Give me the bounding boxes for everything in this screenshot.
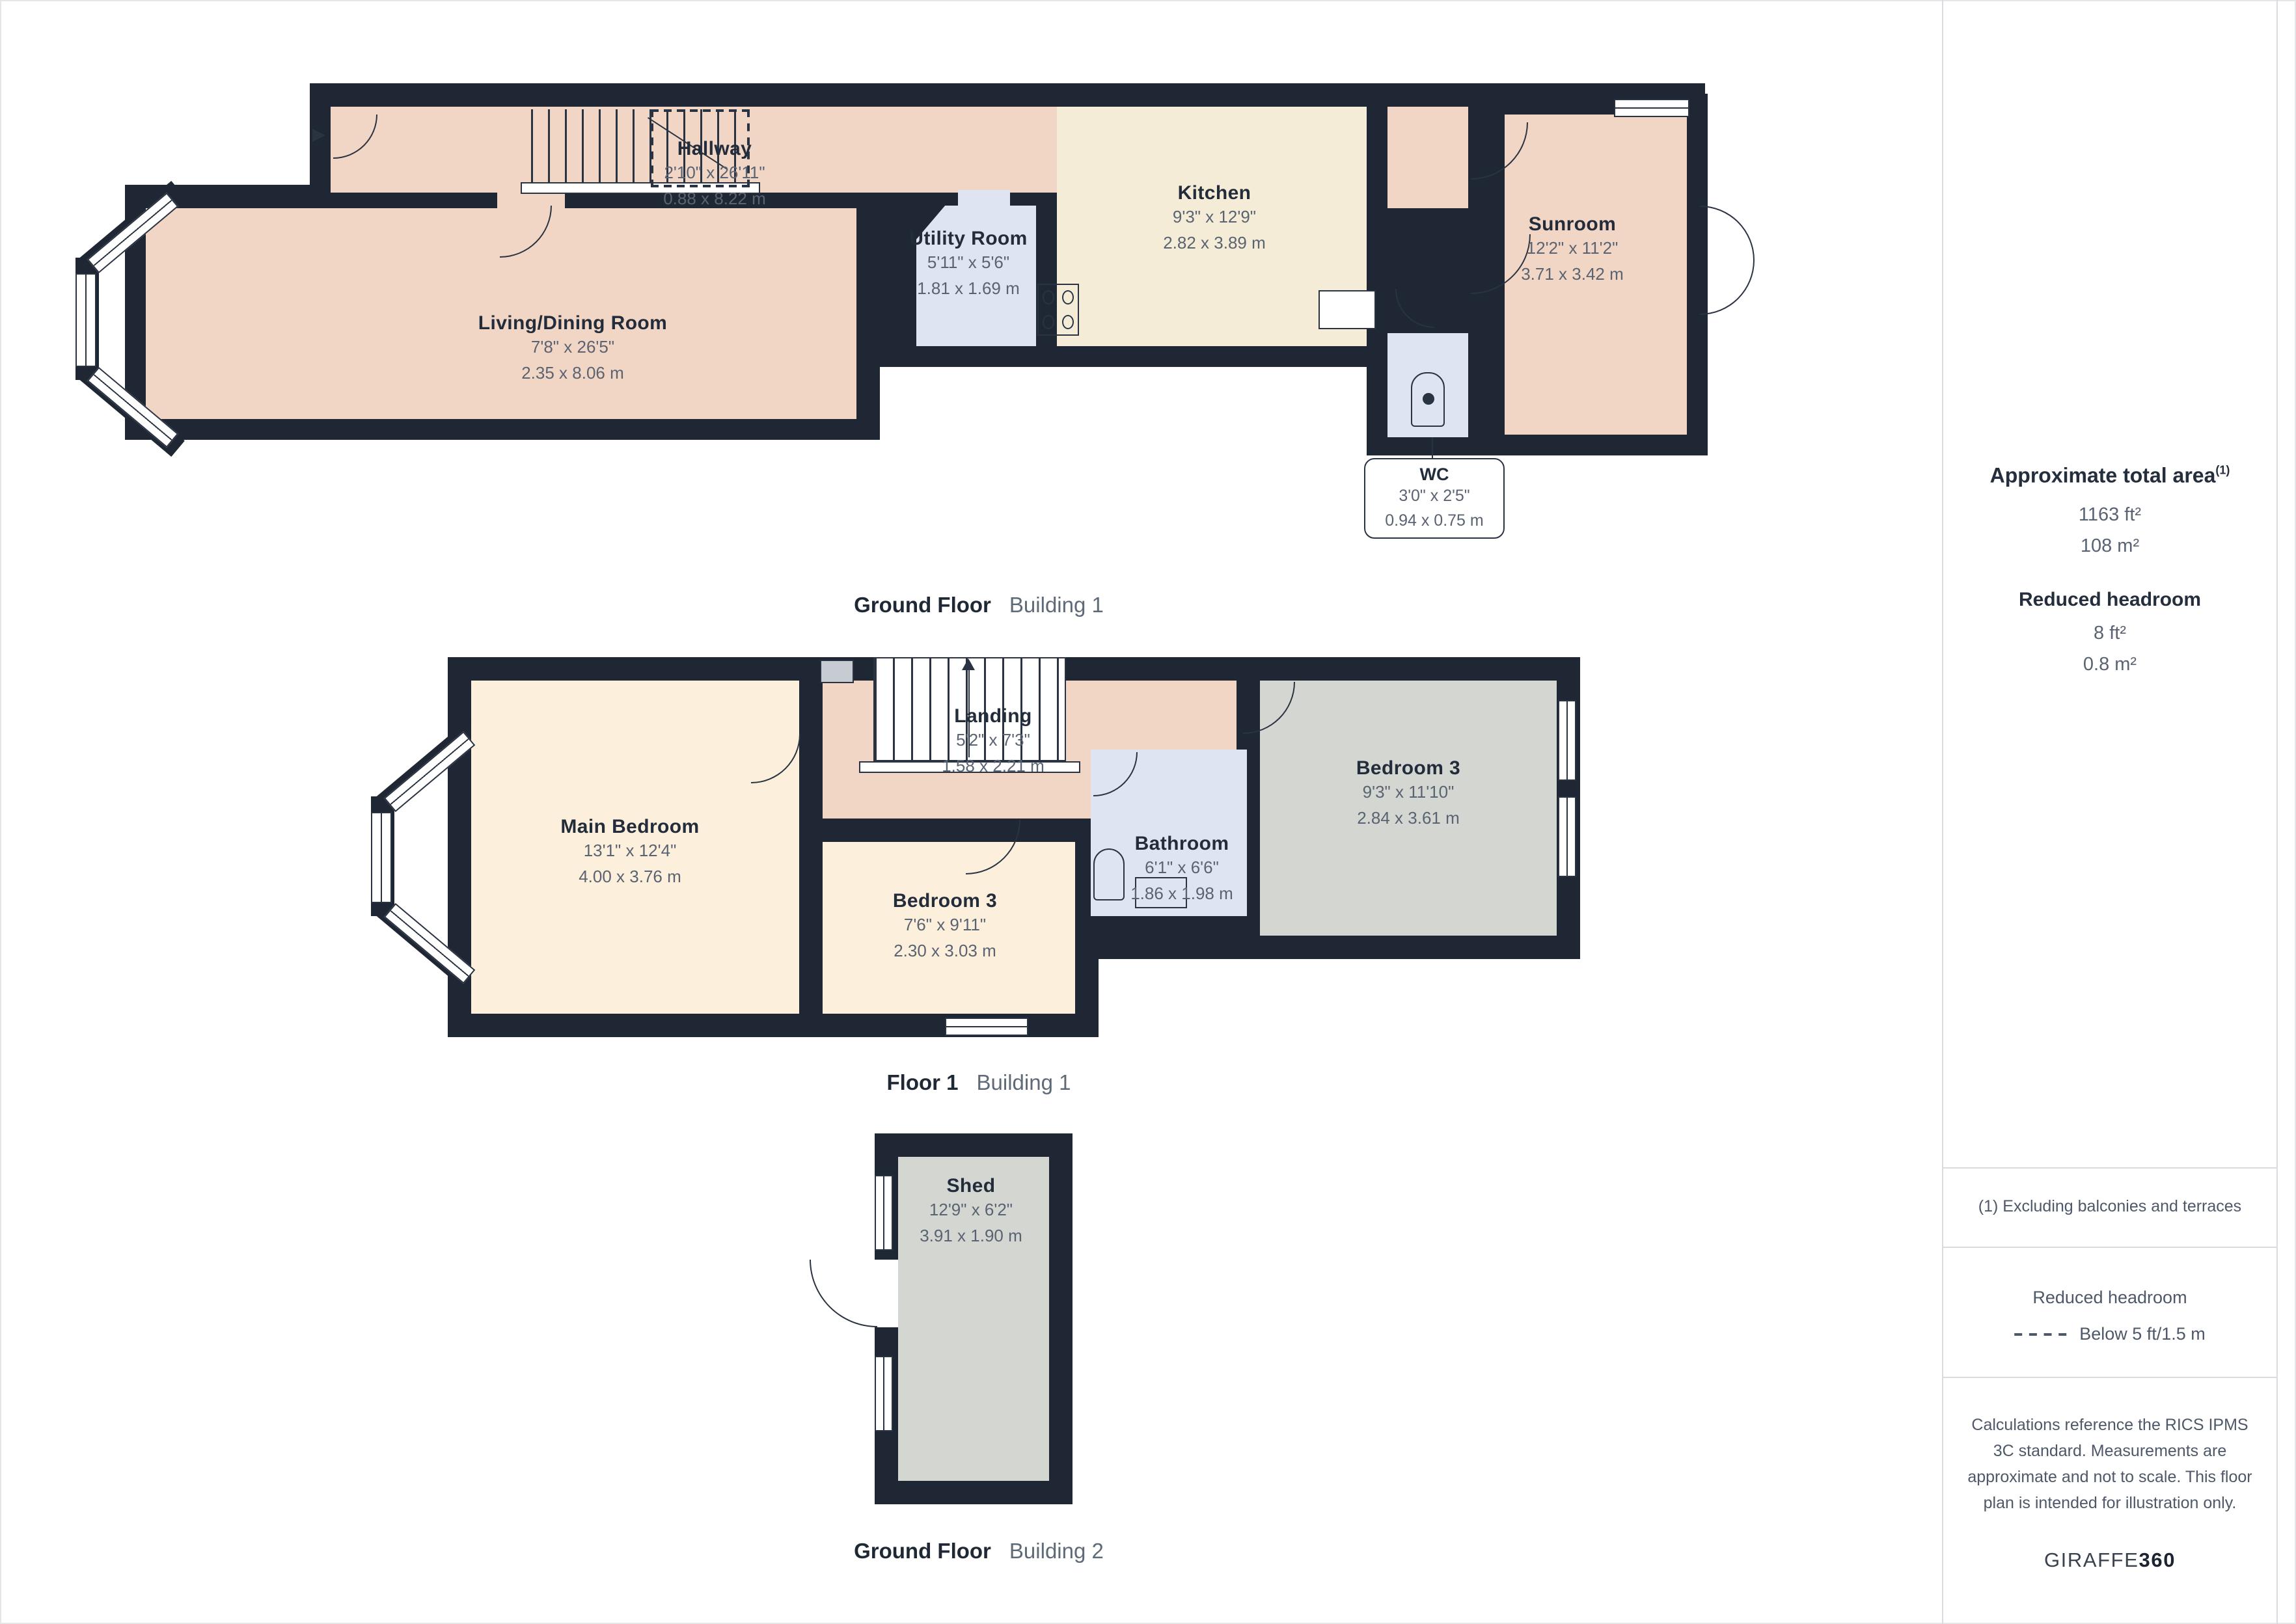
- caption-floor1-b1: Floor 1 Building 1: [887, 1072, 1071, 1096]
- room-label-main-bedroom: Main Bedroom 13'1" x 12'4" 4.00 x 3.76 m: [560, 816, 699, 889]
- room-label-landing: Landing 5'2" x 7'3" 1.58 x 2.21 m: [942, 705, 1045, 778]
- kitchen-hob-icon: [1037, 284, 1079, 336]
- brand-name: GIRAFFE: [2044, 1550, 2139, 1572]
- sidebar-left-border: [1942, 0, 1943, 1624]
- floorplan-page: WC 3'0" x 2'5" 0.94 x 0.75 m Hallway 2'1…: [0, 0, 2296, 1624]
- total-area-m: 108 m²: [2081, 536, 2139, 557]
- floor-label: Floor 1: [887, 1072, 959, 1096]
- room-label-kitchen: Kitchen 9'3" x 12'9" 2.82 x 3.89 m: [1163, 182, 1266, 255]
- entry-arrow-icon: [312, 129, 325, 142]
- shed-window-lower: [875, 1356, 893, 1431]
- kitchen-counter: [1319, 290, 1376, 329]
- f1-gray-box: [820, 660, 854, 683]
- sidebar-right-border: [2276, 0, 2278, 1624]
- sunroom-french-door-lower-arc: [1700, 260, 1755, 315]
- brand-suffix: 360: [2139, 1550, 2176, 1572]
- room-label-living-dining: Living/Dining Room 7'8" x 26'5" 2.35 x 8…: [478, 312, 668, 385]
- f1-bay-window-center: [371, 812, 392, 903]
- utility-door-opening: [958, 190, 1010, 208]
- room-dim-imperial: 3'0" x 2'5": [1365, 485, 1503, 508]
- wc-leader-line: [1432, 437, 1433, 458]
- bedroom3-right-window-lower: [1558, 796, 1576, 877]
- room-label-bathroom: Bathroom 6'1" x 6'6" 1.86 x 1.98 m: [1130, 833, 1233, 906]
- total-area-heading: Approximate total area(1): [1990, 464, 2230, 489]
- room-name: WC: [1365, 465, 1503, 485]
- hob-burner-icon: [1043, 290, 1054, 304]
- floor-label: Ground Floor: [854, 1540, 991, 1565]
- bay-window-center: [75, 273, 96, 367]
- room-label-hallway: Hallway 2'10" x 26'11" 0.88 x 8.22 m: [663, 138, 766, 211]
- bedroom3-mid-bottom-window: [945, 1018, 1028, 1036]
- reduced-headroom-m: 0.8 m²: [2083, 655, 2137, 675]
- sunroom-french-door-upper-arc: [1700, 206, 1755, 260]
- caption-ground-floor-b2: Ground Floor Building 2: [854, 1540, 1104, 1565]
- room-label-bedroom3-right: Bedroom 3 9'3" x 11'10" 2.84 x 3.61 m: [1356, 757, 1460, 830]
- reduced-headroom-dash-icon: [2014, 1333, 2066, 1335]
- hob-burner-icon: [1043, 315, 1054, 329]
- kitchen-passage-floor: [1387, 107, 1468, 208]
- bedroom3-right-window-upper: [1558, 700, 1576, 781]
- sunroom-top-window: [1614, 99, 1689, 117]
- brand-logo: GIRAFFE360: [2044, 1550, 2176, 1573]
- footnote-text: (1) Excluding balconies and terraces: [1978, 1197, 2241, 1215]
- shed-door-opening: [875, 1260, 898, 1327]
- bathroom-toilet-icon: [1093, 848, 1125, 900]
- floor-label: Ground Floor: [854, 594, 991, 619]
- room-label-sunroom: Sunroom 12'2" x 11'2" 3.71 x 3.42 m: [1521, 213, 1624, 286]
- disclaimer-text: Calculations reference the RICS IPMS 3C …: [1959, 1412, 2261, 1516]
- reduced-headroom-heading: Reduced headroom: [2019, 589, 2201, 611]
- reduced-headroom-ft: 8 ft²: [2094, 623, 2126, 644]
- building-label: Building 2: [1009, 1540, 1104, 1565]
- wc-toilet-dot: [1423, 393, 1434, 405]
- shed-door-arc: [810, 1260, 877, 1327]
- f1-stairs-arrow-icon: [962, 658, 975, 670]
- room-label-bedroom3-mid: Bedroom 3 7'6" x 9'11" 2.30 x 3.03 m: [893, 890, 997, 963]
- building-label: Building 1: [1009, 594, 1104, 619]
- total-area-ft: 1163 ft²: [2079, 505, 2141, 526]
- room-label-utility: Utility Room 5'11" x 5'6" 1.81 x 1.69 m: [909, 228, 1027, 301]
- total-area-heading-text: Approximate total area: [1990, 465, 2216, 487]
- building-label: Building 1: [977, 1072, 1071, 1096]
- legend-heading: Reduced headroom: [2032, 1288, 2187, 1307]
- sidebar-divider-2: [1943, 1247, 2276, 1248]
- legend-item: Below 5 ft/1.5 m: [2079, 1324, 2206, 1344]
- footnote-marker: (1): [2215, 464, 2230, 477]
- sidebar-divider-3: [1943, 1377, 2276, 1378]
- room-dim-metric: 0.94 x 0.75 m: [1365, 508, 1503, 532]
- shed-window-upper: [875, 1175, 893, 1251]
- room-label-shed: Shed 12'9" x 6'2" 3.91 x 1.90 m: [920, 1175, 1022, 1248]
- legend-row: Below 5 ft/1.5 m: [2014, 1324, 2206, 1344]
- caption-ground-floor-b1: Ground Floor Building 1: [854, 594, 1104, 619]
- sidebar-divider-1: [1943, 1167, 2276, 1169]
- wc-callout-box: WC 3'0" x 2'5" 0.94 x 0.75 m: [1364, 458, 1505, 539]
- hob-burner-icon: [1062, 290, 1074, 304]
- hob-burner-icon: [1062, 315, 1074, 329]
